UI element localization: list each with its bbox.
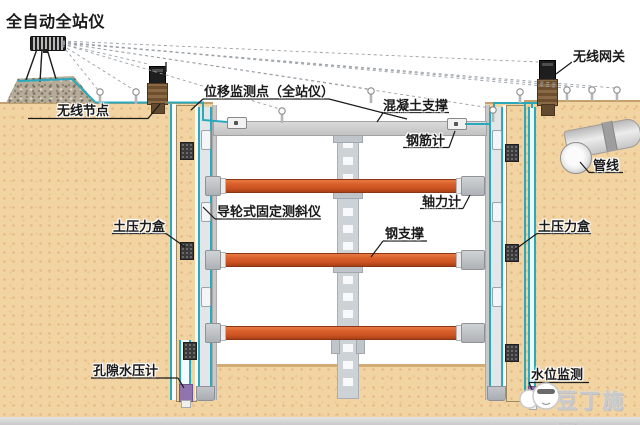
- survey-pegs: [97, 87, 620, 123]
- bottom-border: [0, 417, 640, 425]
- label-total-station: 全自动全站仪: [6, 15, 105, 31]
- excavation-monitoring-diagram: 全自动全站仪 无线节点 位移监测点（全站仪） 混凝土支撑 钢筋计 轴力计 导轮式…: [0, 0, 640, 425]
- watermark-mascot: [520, 383, 559, 409]
- label-steel-support: 钢支撑: [385, 227, 424, 240]
- label-displacement-point: 位移监测点（全站仪）: [204, 85, 334, 98]
- tripod-icon: [26, 49, 56, 82]
- label-pipeline: 管线: [593, 159, 619, 172]
- label-concrete-support: 混凝土支撑: [383, 99, 448, 112]
- sight-lines: [62, 41, 615, 109]
- label-fixed-inclinometer: 导轮式固定测斜仪: [217, 205, 321, 218]
- label-axial-force-meter: 轴力计: [422, 195, 461, 208]
- label-earth-pressure-right: 土压力盒: [538, 220, 590, 233]
- label-earth-pressure-left: 土压力盒: [113, 220, 165, 233]
- label-wireless-node: 无线节点: [57, 104, 109, 117]
- label-pore-water-gauge: 孔隙水压计: [93, 364, 158, 377]
- label-rebar-meter: 钢筋计: [406, 134, 445, 147]
- label-wireless-gateway: 无线网关: [573, 50, 625, 63]
- watermark-logo-text: 豆丁施工: [556, 385, 640, 425]
- label-water-level: 水位监测: [531, 368, 583, 381]
